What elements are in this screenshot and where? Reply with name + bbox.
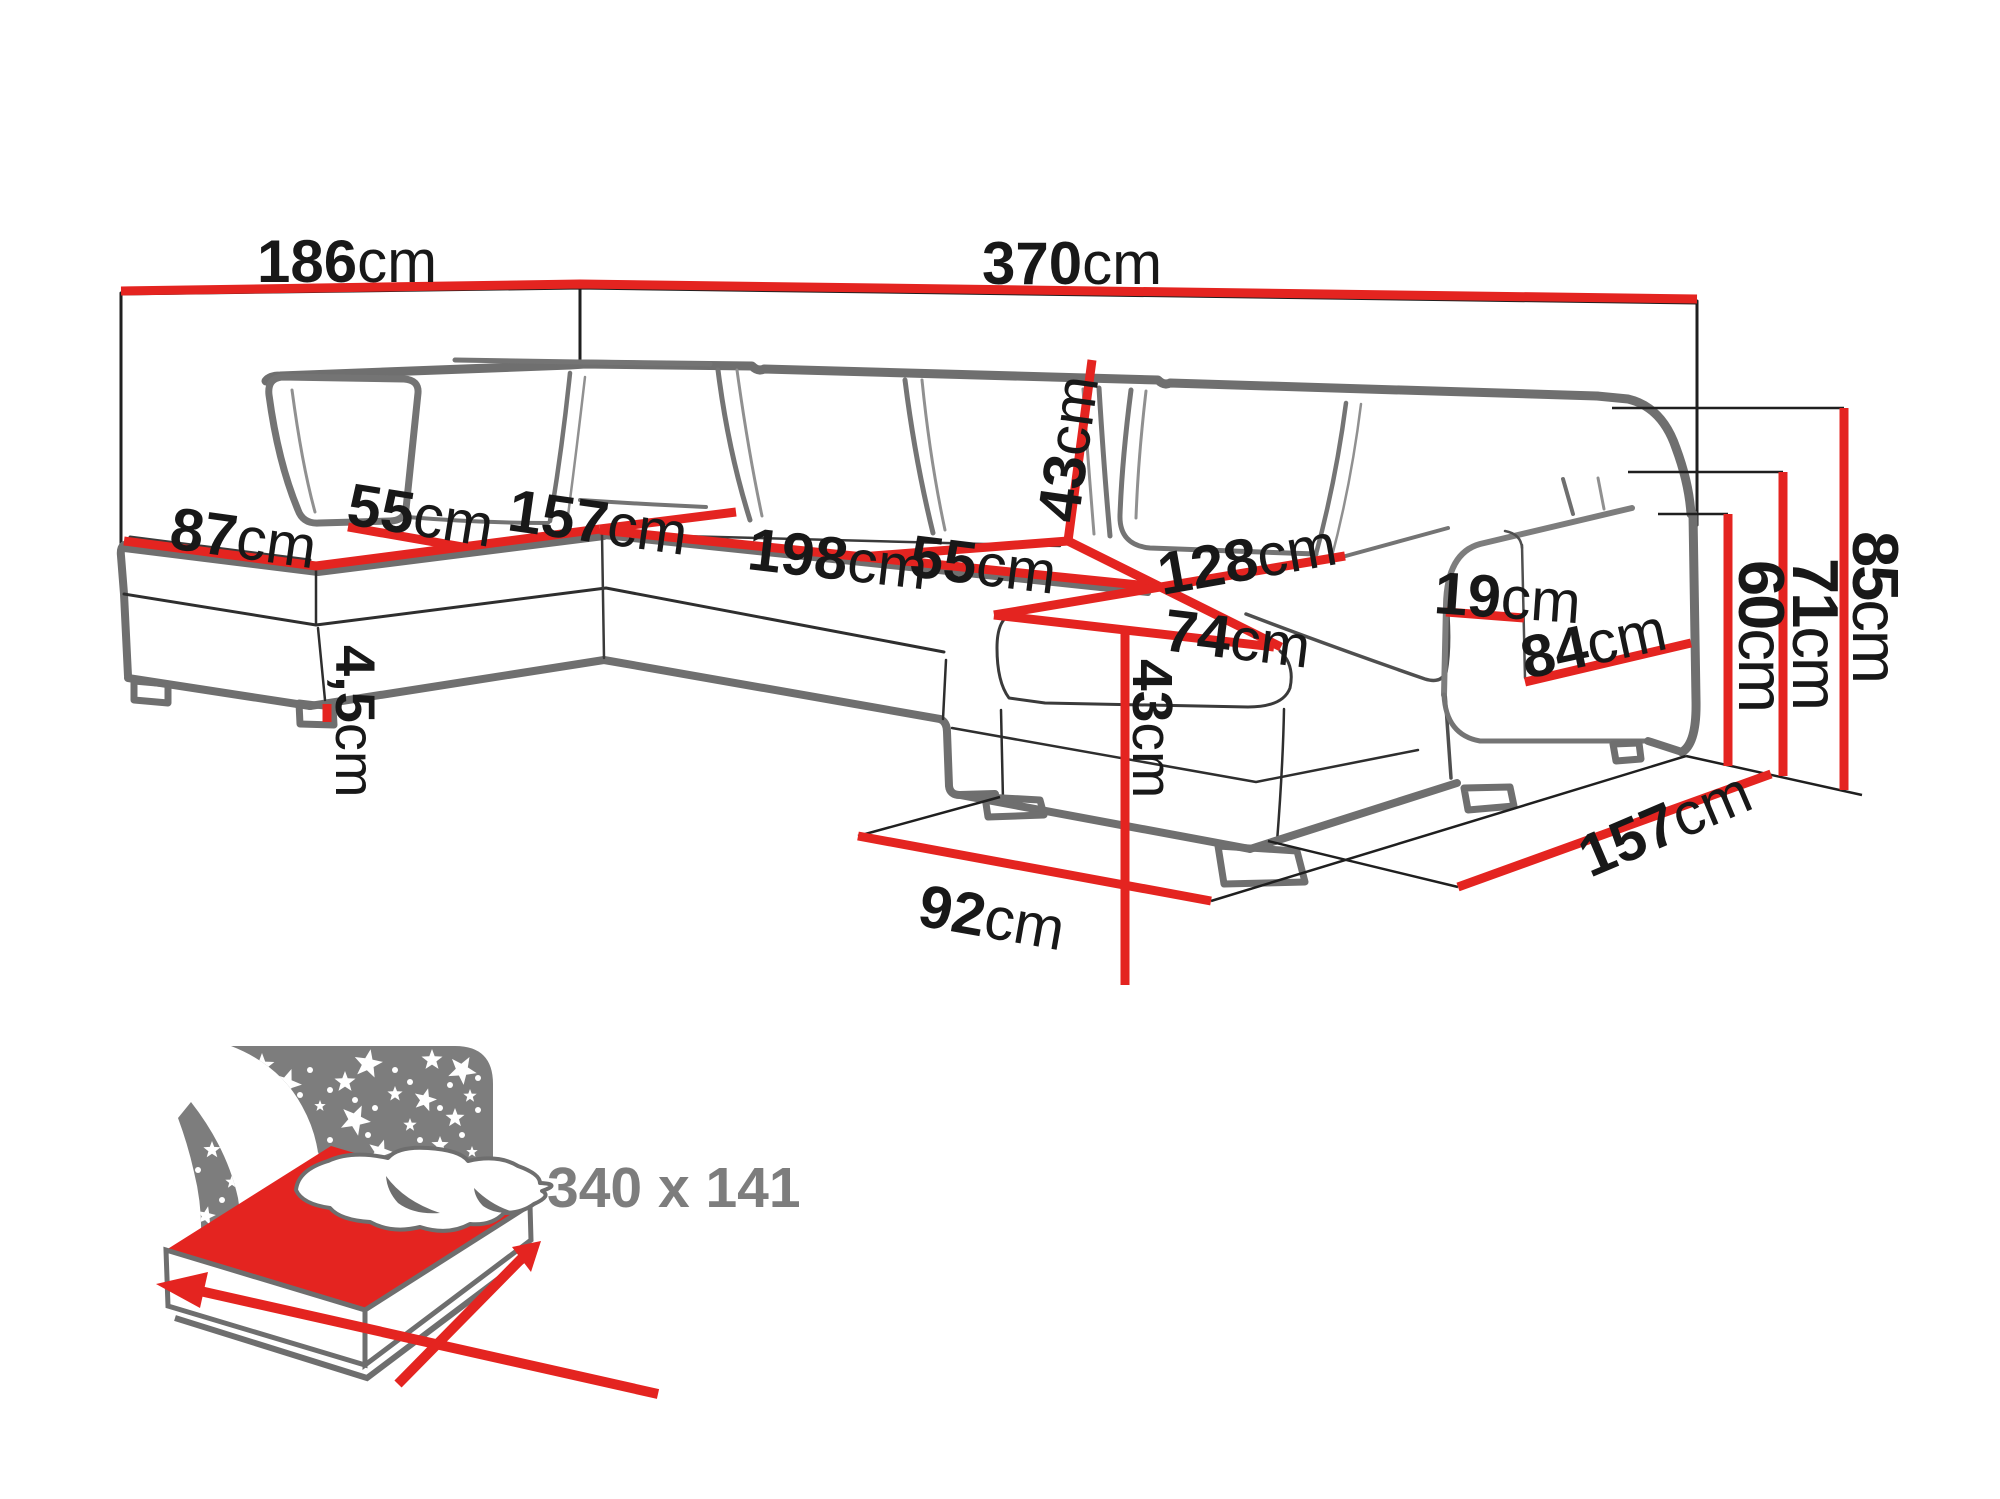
svg-text:186cm: 186cm: [257, 228, 437, 295]
svg-text:43cm: 43cm: [1025, 371, 1112, 526]
svg-text:157cm: 157cm: [504, 477, 692, 568]
svg-text:85cm: 85cm: [1839, 531, 1912, 682]
svg-text:55cm: 55cm: [343, 471, 498, 560]
svg-text:128cm: 128cm: [1153, 511, 1342, 608]
svg-text:198cm: 198cm: [745, 515, 932, 602]
svg-text:157cm: 157cm: [1569, 758, 1761, 890]
svg-text:92cm: 92cm: [914, 872, 1070, 963]
svg-text:340 x 141: 340 x 141: [547, 1156, 801, 1220]
svg-text:370cm: 370cm: [982, 230, 1162, 297]
svg-text:4,5cm: 4,5cm: [324, 645, 387, 798]
svg-text:43cm: 43cm: [1120, 659, 1184, 798]
svg-text:55cm: 55cm: [906, 522, 1060, 606]
